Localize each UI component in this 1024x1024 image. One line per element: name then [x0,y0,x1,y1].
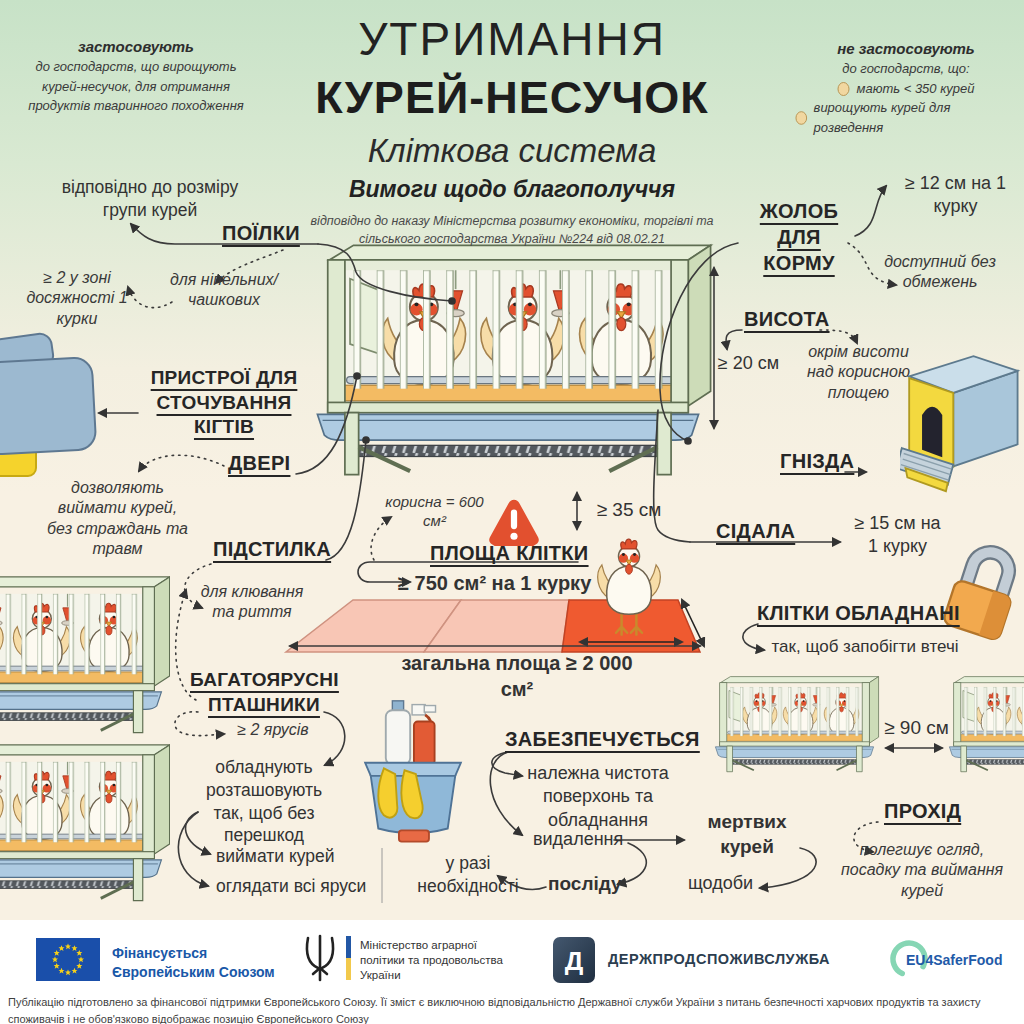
perches-heading: СІДАЛА [716,518,795,544]
feeder-access-note: доступний без обмежень [880,252,1000,293]
applies-title: застосовують [20,38,252,55]
order-reference: відповідно до наказу Міністерства розвит… [302,212,722,248]
aisle-cage-left-illustration [714,674,880,774]
service-label: ДЕРЖПРОДСПОЖИВСЛУЖБА [608,951,830,967]
multitier-tiers-value: ≥ 2 ярусів [228,720,318,740]
drinkers-type-note: для ніпельних/ чашкових [168,270,280,311]
aisle-note: полегшує огляд, посадку та виймання куре… [832,840,1012,901]
feeder-per-hen-value: ≥ 12 см на 1 курку [898,172,1013,219]
not-applies-item1-label: мають < 350 курей [856,79,974,99]
not-applies-subtitle: до господарств, що: [795,59,1017,79]
aisle-cage-right-illustration [948,674,1024,774]
aisle-heading: ПРОХІД [884,798,961,824]
ministry-label: Міністерство аграрної політики та продов… [360,938,510,983]
ensured-heading: ЗАБЕЗПЕЧУЄТЬСЯ [505,726,700,752]
trident-icon [300,932,340,986]
padlock-icon [938,532,1024,648]
equipped-note: так, щоб запобігти втечі [770,636,960,658]
multitier-item1: виймати курей [216,845,346,868]
height-value: ≥ 20 см [716,352,781,375]
cleanliness-note: належна чистота поверхонь та обладнання [498,762,698,832]
standing-hen-illustration [592,533,666,645]
infographic-poster: застосовують до господарств, що вирощуют… [0,0,1024,1024]
applies-text: до господарств, що вирощують курей-несуч… [20,57,252,116]
aisle-width-value: ≥ 90 см [884,716,949,741]
as-needed-label: у разі необхідності [412,852,524,898]
claw-devices-heading: ПРИСТРОЇ ДЛЯ СТОЧУВАННЯ КІГТІВ [138,366,310,440]
height-note: окрім висоти над корисною площею [806,342,911,403]
cage-area-heading: ПЛОЩА КЛІТКИ [430,540,589,566]
doors-heading: ДВЕРІ [228,450,290,476]
not-applies-note: не застосовують до господарств, що: мают… [795,40,1017,137]
eu4saferfood-label: EU4SaferFood [906,952,1002,968]
not-applies-title: не застосовують [795,40,1017,57]
applies-note: застосовують до господарств, що вирощуют… [20,38,252,116]
doors-note: дозволяють виймати курей, без страждань … [45,478,190,560]
multitier-heading: БАГАТОЯРУСНІ ПТАШНИКИ [190,668,338,717]
page-title-line1: УТРИМАННЯ [262,12,762,66]
area-per-hen-value: ≥ 750 см² на 1 курку [398,570,598,596]
height-heading: ВИСОТА [744,306,830,332]
page-title-line2: КУРЕЙ-НЕСУЧОК [262,72,762,124]
group-size-note: відповідно до розміру групи курей [55,176,245,222]
cleaning-kit-illustration [352,688,474,846]
litter-note: для клювання та риття [192,582,312,623]
useful-area-note: корисна = 600 см² [382,492,487,530]
not-applies-item: мають < 350 курей [795,79,1017,99]
egg-icon [837,81,850,96]
footer-bar: Фінансується Європейським Союзом Міністе… [0,920,1024,1024]
svg-text:Д: Д [565,946,584,976]
dead-hens-label: мертвих курей [688,810,806,859]
claw-device-illustration [0,330,100,480]
total-area-value: загальна площа ≥ 2 000 см² [392,650,642,702]
multitier-item2: оглядати всі яруси [216,875,376,898]
height35-value: ≥ 35 см [594,498,664,523]
page-subtitle2: Вимоги щодо благополуччя [262,176,762,203]
not-applies-item2-label: вирощують курей для розведення [814,98,1017,137]
eu-flag-icon [36,938,100,981]
litter-heading: ПІДСТИЛКА [213,536,331,562]
ministry-flag-bar [346,936,351,980]
service-logo-icon: Д [552,936,596,984]
page-subtitle: Кліткова система [262,132,762,170]
removal-label: видалення [533,828,623,851]
nests-heading: ГНІЗДА [780,448,854,474]
droppings-label: посліду [548,872,618,897]
multitier-note: обладнують розташовують так, щоб без пер… [200,756,328,847]
not-applies-item: вирощують курей для розведення [795,98,1017,137]
egg-icon [795,110,808,125]
disclaimer-text: Публікацію підготовлено за фінансової пі… [8,994,1020,1024]
nest-box-illustration [900,345,1024,495]
eu-funding-label: Фінансується Європейським Союзом [112,944,302,982]
daily-label: щодоби [688,872,758,895]
perches-value: ≥ 15 см на 1 курку [850,512,945,559]
equipped-heading: КЛІТКИ ОБЛАДНАНІ [757,600,960,626]
main-cage-illustration [314,241,714,478]
feeder-heading: ЖОЛОБ ДЛЯ КОРМУ [740,198,858,276]
drinkers-heading: ПОЇЛКИ [222,220,300,246]
title-block: УТРИМАННЯ КУРЕЙ-НЕСУЧОК Кліткова система… [262,12,762,248]
multitier-cage-illustration [0,574,170,906]
drinkers-zone-note: ≥ 2 у зоні досяжності 1 курки [12,268,142,329]
